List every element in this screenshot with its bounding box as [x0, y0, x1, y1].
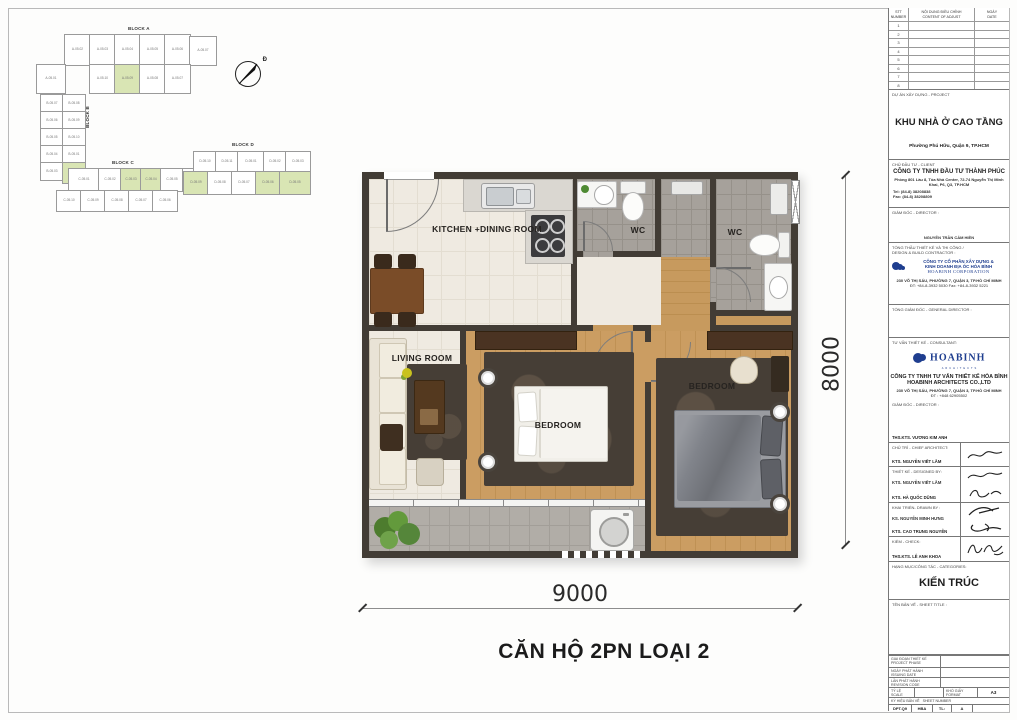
keyplan-unit: C-05.10	[56, 190, 82, 212]
dimension-line-horizontal	[362, 608, 798, 609]
dining-chair	[398, 254, 416, 269]
washing-machine	[590, 509, 634, 551]
project-name: KHU NHÀ Ở CAO TẦNG	[889, 117, 1009, 128]
keyplan-unit: D-05.11	[215, 151, 239, 173]
bedroom1-wardrobe	[475, 331, 577, 350]
keyplan-unit: D-05.06	[255, 171, 281, 195]
revision-row: 1	[889, 21, 1009, 30]
wall-right	[791, 172, 798, 558]
ottoman	[416, 458, 444, 486]
kitchen-label: KITCHEN +DINING ROOM	[432, 224, 542, 234]
keyplan-unit: C-05.04	[140, 168, 162, 192]
director-name: NGUYỄN TRẦN CẨM HIỀN	[889, 235, 1009, 240]
keyplan-block-d-label: BLOCK D	[232, 142, 254, 147]
keyplan-unit: A-05.07	[189, 36, 217, 66]
keyplan-unit: C-05.01	[68, 168, 100, 192]
contractor-section: TỔNG THẦU THIẾT KẾ VÀ THI CÔNG / DESIGN …	[889, 243, 1009, 305]
category-value: KIẾN TRÚC	[889, 577, 1009, 589]
plant-icon	[581, 185, 589, 193]
keyplan-unit: D-05.03	[285, 151, 311, 173]
sheet-title-section: TÊN BẢN VẼ - SHEET TITLE :	[889, 600, 1009, 655]
drawn-by-section: KHAI TRIỂN- DRAWN BY : KS. NGUYỄN MINH H…	[889, 503, 1009, 537]
dining-chair	[374, 254, 392, 269]
keyplan-unit: D-05.09	[183, 171, 209, 195]
balcony-window-wall	[369, 499, 645, 507]
keyplan-unit: D-05.01	[237, 151, 265, 173]
format-value: A3	[978, 688, 1009, 697]
keyplan-unit: A-05.05	[139, 34, 166, 66]
client-section: CHỦ ĐẦU TƯ - CLIENT CÔNG TY TNHH ĐẦU TƯ …	[889, 160, 1009, 208]
dining-chair	[374, 312, 392, 327]
bedroom2-wardrobe	[707, 331, 793, 350]
keyplan-unit: C-05.05	[160, 168, 184, 192]
keyplan-unit: A-05.10	[89, 64, 116, 94]
plan-title: CĂN HỘ 2PN LOẠI 2	[498, 640, 710, 664]
sconce-icon	[478, 368, 498, 388]
coffee-table	[414, 380, 445, 434]
bedroom2-bed	[674, 410, 786, 508]
general-director-section: TỔNG GIÁM ĐỐC - GENERAL DIRECTOR :	[889, 305, 1009, 338]
armchair	[380, 424, 403, 451]
keyplan-block-c-label: BLOCK C	[112, 160, 134, 165]
sconce-icon	[478, 452, 498, 472]
keyplan-unit: D-05.08	[207, 171, 233, 195]
sconce-icon	[770, 494, 790, 514]
designed-by-section: THIẾT KẾ - DESIGNED BY: KTS. NGUYỄN VIẾT…	[889, 467, 1009, 503]
compass-needle	[235, 58, 265, 88]
keyplan-unit: C-05.02	[98, 168, 122, 192]
wall-left	[362, 172, 369, 558]
wc2-toilet	[747, 231, 789, 257]
wc2-label: WC	[728, 227, 743, 237]
keyplan-unit: C-05.09	[80, 190, 106, 212]
bedroom2-desk	[771, 356, 789, 392]
client-name: CÔNG TY TNHH ĐẦU TƯ THÀNH PHÚC	[889, 169, 1009, 175]
wc2-vanity	[764, 263, 792, 311]
keyplan-unit: A-05.04	[114, 34, 141, 66]
floor-plan: KITCHEN +DINING ROOM WC WC LIVING ROOM B…	[362, 172, 798, 558]
compass-icon: Đ	[235, 58, 265, 88]
keyplan-unit: A-05.03	[89, 34, 116, 66]
keyplan-unit: D-05.02	[263, 151, 287, 173]
kitchen-sink	[481, 183, 535, 209]
chief-architect-section: CHỦ TRÌ - CHIEF ARCHITECT: KTS. NGUYỄN V…	[889, 443, 1009, 467]
revision-row: 3	[889, 38, 1009, 47]
keyplan-unit: C-05.03	[120, 168, 142, 192]
consultant-section: TƯ VẤN THIẾT KẾ - CONSULTANT: HOABINH AR…	[889, 338, 1009, 443]
balcony-plant-icon	[372, 509, 422, 551]
consultant-logo: HOABINH ARCHITECTS	[889, 349, 1009, 370]
hall-wood-floor	[661, 257, 710, 325]
keyplan-unit: A-05.07	[164, 64, 191, 94]
signature	[965, 447, 1005, 463]
living-label: LIVING ROOM	[392, 353, 452, 363]
keyplan-unit: C-05.08	[104, 190, 130, 212]
project-location: Phường Phú Hữu, Quận 9, TP.HCM	[889, 144, 1009, 149]
revision-row: 6	[889, 64, 1009, 73]
check-section: KIỂM - CHECK: THS.KTS. LÊ ANH KHOA	[889, 537, 1009, 562]
consultant-director-name: THS.KTS. VƯƠNG KIM ANH	[892, 435, 947, 440]
keyplan-unit: A-05.02	[64, 34, 91, 66]
keyplan-unit: C-05.07	[128, 190, 154, 212]
dining-table	[370, 268, 424, 314]
wc1-toilet	[619, 181, 645, 221]
compass-direction-label: Đ	[263, 57, 267, 63]
revision-rows: 123456789	[889, 21, 1009, 90]
keyplan-unit: A-05.06	[164, 34, 191, 66]
sconce-icon	[770, 402, 790, 422]
signature	[965, 486, 1005, 500]
signature	[965, 521, 1005, 534]
keyplan-unit: C-05.06	[152, 190, 178, 212]
keyplan-unit: D-05.07	[231, 171, 257, 195]
revision-row: 5	[889, 55, 1009, 64]
revision-row: 7	[889, 72, 1009, 81]
wc1-label: WC	[631, 225, 646, 235]
keyplan-unit: D-05.05	[279, 171, 311, 195]
wc2-shower-fixture	[770, 183, 788, 215]
contractor-logo-icon	[892, 257, 910, 275]
title-block: STT NUMBER NỘI DUNG ĐIỀU CHỈNH CONTENT O…	[888, 8, 1009, 711]
signature	[965, 505, 1005, 518]
dining-chair	[398, 312, 416, 327]
revision-row: 2	[889, 30, 1009, 39]
admin-rows: GIAI ĐOẠN THIẾT KẾPROJECT PHASE NGÀY PHÁ…	[889, 655, 1009, 712]
keyplan-unit: A-05.01	[36, 64, 66, 94]
wc1-vanity	[577, 181, 617, 208]
keyplan-unit: A-05.08	[139, 64, 166, 94]
signature	[965, 469, 1005, 483]
keyplan-unit: D-05.10	[193, 151, 217, 173]
dimension-line-vertical	[845, 175, 846, 545]
keyplan-block-a-label: BLOCK A	[128, 26, 150, 31]
revision-row: 8	[889, 81, 1009, 90]
signature	[964, 540, 1006, 558]
revision-table: STT NUMBER NỘI DUNG ĐIỀU CHỈNH CONTENT O…	[889, 8, 1009, 90]
drawing-sheet: BLOCK A BLOCK B BLOCK C BLOCK D A-05.02A…	[0, 0, 1017, 720]
bedroom2-label: BEDROOM	[689, 381, 736, 391]
dimension-height: 8000	[820, 336, 845, 392]
shower-fixture	[671, 181, 703, 195]
bedroom2-chair	[730, 356, 758, 384]
stove	[531, 215, 565, 257]
contractor-name-en: HOABINH CORPORATION	[910, 269, 1007, 274]
bedroom1-label: BEDROOM	[535, 420, 582, 430]
keyplan-unit: A-05.09	[114, 64, 141, 94]
balcony-vent	[562, 551, 645, 558]
revision-row: 4	[889, 47, 1009, 56]
project-section: DỰ ÁN XÂY DỰNG - PROJECT KHU NHÀ Ở CAO T…	[889, 90, 1009, 160]
categories-section: HẠNG MỤC/CÔNG TÁC - CATEGORIES: KIẾN TRÚ…	[889, 562, 1009, 600]
key-plan: BLOCK A BLOCK B BLOCK C BLOCK D A-05.02A…	[28, 18, 318, 218]
window-right	[791, 180, 800, 224]
flowers-icon	[402, 368, 412, 378]
director-section: GIÁM ĐỐC - DIRECTOR : NGUYỄN TRẦN CẨM HI…	[889, 208, 1009, 243]
dimension-width: 9000	[552, 582, 608, 607]
keyplan-unit: B-05.03	[40, 162, 64, 181]
